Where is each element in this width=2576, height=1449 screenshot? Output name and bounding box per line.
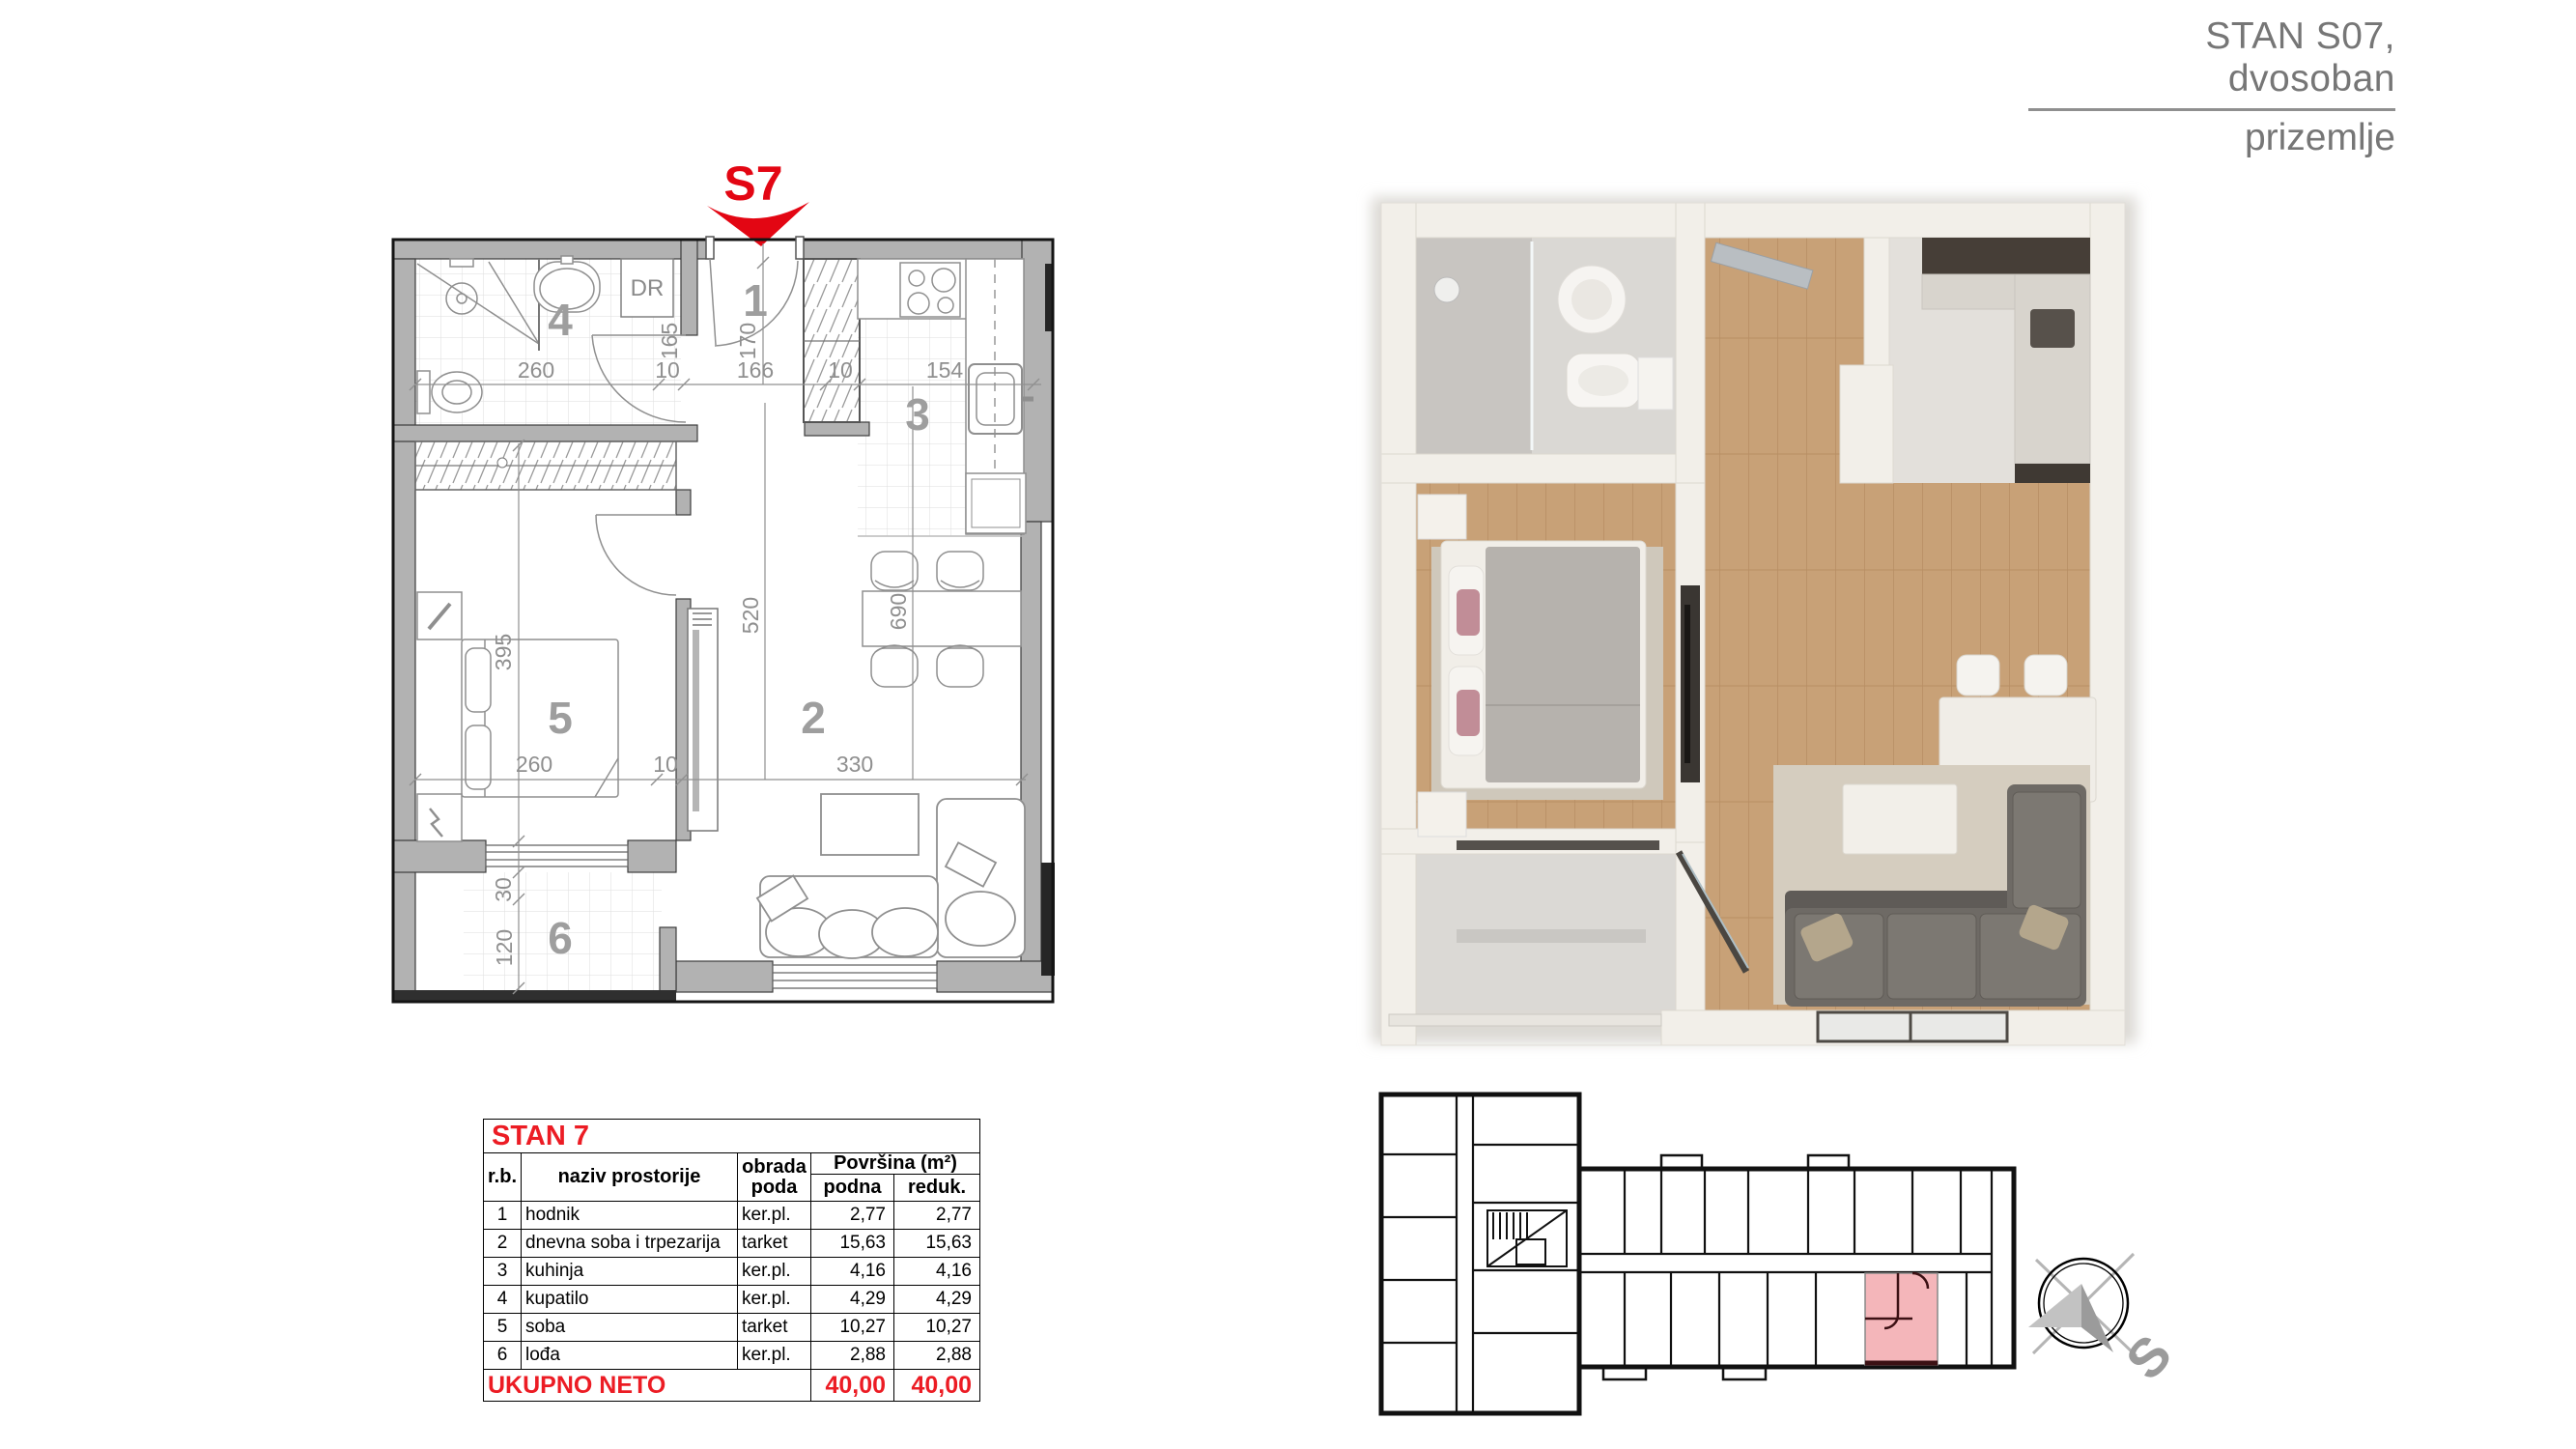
table-row: 1hodnik ker.pl.2,77 2,77 — [484, 1202, 980, 1230]
r3d-kitchen-cabinets-top — [1922, 238, 2090, 274]
room-label-bedroom: 5 — [548, 693, 573, 743]
tv-cabinet-icon — [688, 609, 718, 831]
fridge-icon — [966, 473, 1026, 533]
cabinet-label: DR — [631, 275, 665, 301]
title-block: STAN S07, dvosoban prizemlje — [2028, 15, 2395, 159]
table-row: 5soba tarket10,27 10,27 — [484, 1314, 980, 1342]
area-table: STAN 7 r.b. naziv prostorije obrada poda… — [483, 1119, 980, 1402]
chair-icon — [937, 645, 983, 687]
svg-text:330: 330 — [836, 752, 873, 777]
r3d-kitchen-counter-right — [2015, 274, 2090, 464]
bedroom-door — [596, 515, 676, 595]
r3d-loggia-rail — [1389, 1014, 1661, 1026]
room-label-living: 2 — [801, 693, 826, 743]
table-footer-reduced: 40,00 — [894, 1370, 980, 1402]
chair-icon — [871, 552, 918, 590]
render-3d — [1343, 164, 2193, 1072]
unit-marker: S7 — [707, 156, 809, 246]
floorplan-sheet: STAN S07, dvosoban prizemlje S7 — [0, 0, 2576, 1449]
table-footer-area: 40,00 — [811, 1370, 894, 1402]
col-header-area: Površina (m²) — [811, 1153, 980, 1175]
svg-text:154: 154 — [926, 357, 964, 383]
r3d-kitchen-cabinet-low — [2015, 464, 2090, 483]
svg-text:165: 165 — [657, 323, 682, 359]
svg-text:690: 690 — [886, 593, 911, 630]
bathroom-cabinet: DR — [621, 259, 673, 317]
r3d-kitchen-sink — [2030, 309, 2075, 348]
col-header-reduk: reduk. — [894, 1175, 980, 1202]
r3d-washer — [1638, 357, 1673, 410]
living-window — [773, 965, 937, 988]
col-header-rb: r.b. — [484, 1153, 522, 1202]
page-title: STAN S07, dvosoban — [2028, 15, 2395, 111]
svg-text:30: 30 — [491, 877, 516, 902]
r3d-loggia-bench — [1457, 929, 1646, 943]
keyplan-highlighted-unit — [1865, 1273, 1938, 1365]
floorplan-2d: S7 — [377, 82, 1072, 1009]
compass-icon: S — [2024, 1241, 2197, 1410]
table-row: 4kupatilo ker.pl.4,29 4,29 — [484, 1286, 980, 1314]
hall-closet — [804, 259, 860, 422]
r3d-bed-duvet — [1486, 547, 1640, 782]
svg-text:260: 260 — [518, 357, 554, 383]
table-row: 6lođa ker.pl.2,88 2,88 — [484, 1342, 980, 1370]
r3d-loggia-track — [1457, 840, 1659, 850]
bedroom-wardrobe — [415, 441, 676, 490]
svg-text:10: 10 — [655, 357, 680, 383]
col-header-name: naziv prostorije — [522, 1153, 738, 1202]
chair-icon — [937, 552, 983, 590]
r3d-shower-head — [1434, 277, 1459, 302]
room-label-kitchen: 3 — [905, 389, 930, 440]
toilet-icon — [417, 371, 482, 413]
r3d-tv — [1684, 605, 1690, 763]
svg-text:10: 10 — [653, 752, 678, 777]
svg-text:520: 520 — [738, 597, 763, 634]
r3d-kitchen-counter-left — [1922, 274, 2015, 309]
room-label-loggia: 6 — [548, 913, 573, 963]
svg-text:120: 120 — [492, 929, 517, 966]
svg-text:395: 395 — [491, 634, 516, 670]
building-keyplan — [1372, 1087, 2019, 1425]
r3d-bath-sink-basin — [1578, 365, 1628, 396]
unit-label: S7 — [723, 156, 782, 211]
svg-text:10: 10 — [828, 357, 853, 383]
r3d-nightstand — [1418, 792, 1466, 837]
compass-south-label: S — [2114, 1323, 2184, 1391]
r3d-window-mats — [1818, 1012, 2007, 1041]
r3d-nightstand — [1418, 495, 1466, 539]
table-footer-label: UKUPNO NETO — [484, 1370, 811, 1402]
balcony-door — [486, 845, 628, 867]
page-subtitle: prizemlje — [2028, 117, 2395, 159]
loggia-bottom-wall — [393, 990, 676, 1002]
table-row: 2dnevna soba i trpezarija tarket15,63 15… — [484, 1230, 980, 1258]
r3d-bath-lamp-inner — [1571, 279, 1612, 320]
chair-icon — [871, 645, 918, 687]
room-label-bathroom: 4 — [548, 295, 573, 345]
col-header-podna: podna — [811, 1175, 894, 1202]
r3d-shower-floor — [1416, 238, 1532, 454]
r3d-coffee-table — [1843, 784, 1957, 854]
svg-text:166: 166 — [737, 357, 774, 383]
col-header-floor: obrada poda — [738, 1153, 811, 1202]
svg-text:260: 260 — [516, 752, 552, 777]
coffee-table-icon — [821, 794, 919, 855]
table-title: STAN 7 — [484, 1120, 980, 1153]
svg-text:170: 170 — [735, 323, 760, 359]
room-label-hall: 1 — [743, 275, 768, 326]
table-row: 3kuhinja ker.pl.4,16 4,16 — [484, 1258, 980, 1286]
nightstands — [417, 592, 462, 841]
